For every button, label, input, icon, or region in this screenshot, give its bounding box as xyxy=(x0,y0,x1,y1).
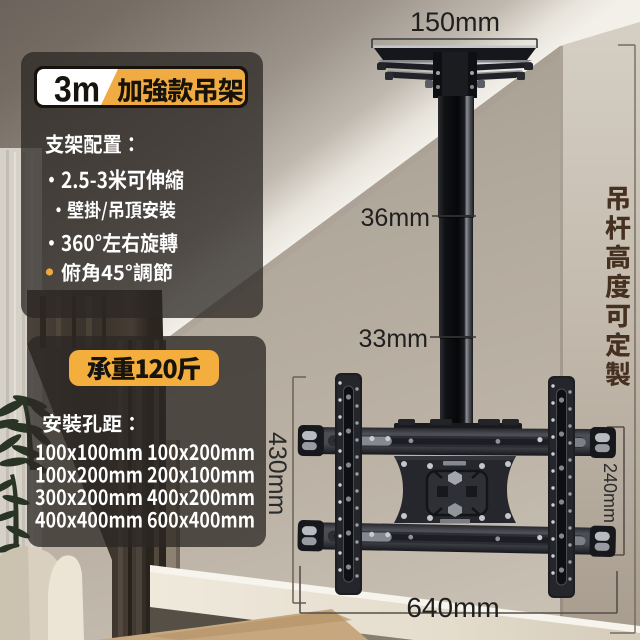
svg-text:3m: 3m xyxy=(54,69,100,110)
